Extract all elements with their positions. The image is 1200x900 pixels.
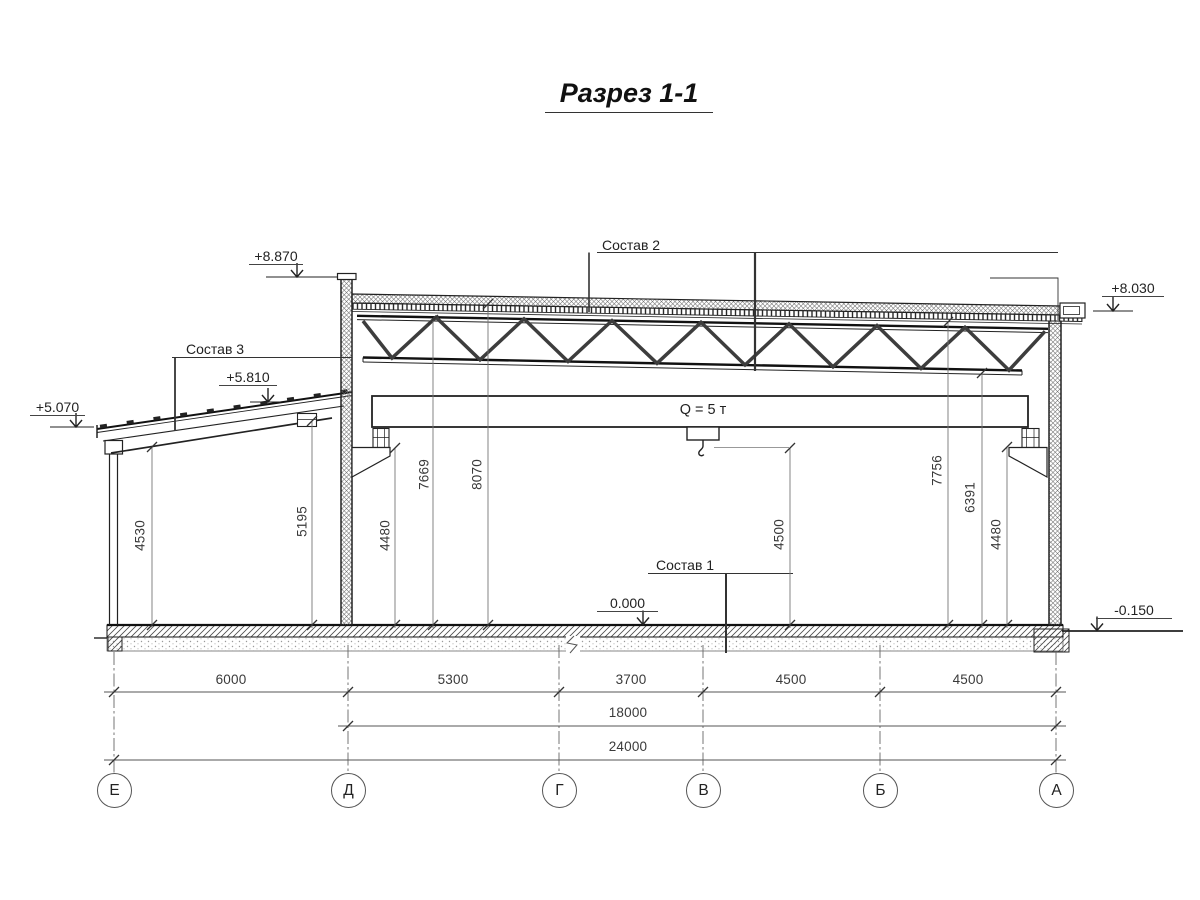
corbel-right — [1009, 448, 1047, 478]
axis-bubble-v: В — [686, 773, 721, 808]
foundation-left — [108, 637, 122, 651]
crane-capacity-label: Q = 5 т — [660, 402, 746, 418]
callout-sostav-3: Состав 3 — [186, 341, 244, 357]
elevation-floor-zero: 0.000 — [597, 595, 658, 612]
dim-roof-left: 8070 — [470, 445, 485, 505]
elevation-arrow-0000 — [637, 611, 649, 625]
dim-truss-right: 7756 — [930, 441, 945, 501]
dim-chord-right: 6391 — [963, 468, 978, 528]
axis-bubble-e: Е — [97, 773, 132, 808]
axis-bubble-a: А — [1039, 773, 1074, 808]
elevation-arrow-8870 — [291, 263, 303, 277]
drawing-sheet: Разрез 1-1 +8.870 +8.030 +5.810 +5.070 0… — [0, 0, 1200, 900]
axis-bubble-g: Г — [542, 773, 577, 808]
dim-total-overall: 24000 — [596, 739, 660, 754]
axis-bubble-b: Б — [863, 773, 898, 808]
dim-annex-right: 5195 — [295, 492, 310, 552]
main-roof — [352, 294, 1085, 324]
wall-axis-A — [1049, 321, 1061, 625]
dim-truss-left: 7669 — [417, 445, 432, 505]
elevation-roof-edge-right: +8.030 — [1102, 280, 1164, 297]
dim-rail-right: 4480 — [989, 505, 1004, 565]
crane-rail-left — [373, 429, 389, 448]
truss-web-diagonals — [363, 317, 1045, 370]
dim-span-d-g: 5300 — [421, 672, 485, 687]
axis-grid-lines — [114, 645, 1056, 774]
callout-sostav-1: Состав 1 — [656, 557, 714, 573]
crane-hook — [699, 440, 704, 456]
elevation-arrow-8030 — [1107, 297, 1119, 311]
elevation-annex-low: +5.070 — [30, 399, 85, 416]
dim-span-e-d: 6000 — [199, 672, 263, 687]
elevation-parapet-left: +8.870 — [249, 248, 303, 265]
horizontal-dim-lines — [104, 692, 1066, 760]
roof-truss — [357, 316, 1048, 375]
crane-rail-right — [1022, 429, 1039, 448]
foundation-right — [1034, 629, 1069, 652]
dim-rail-left: 4480 — [378, 506, 393, 566]
dim-hook-height: 4500 — [772, 505, 787, 565]
corbel-left — [352, 448, 390, 478]
parapet-cap — [338, 274, 357, 280]
floor-slab — [94, 625, 1183, 653]
crane-trolley — [687, 427, 719, 440]
drawing-title: Разрез 1-1 — [545, 78, 713, 113]
dim-span-b-a: 4500 — [936, 672, 1000, 687]
section-drawing — [0, 0, 1200, 900]
dim-span-v-b: 4500 — [759, 672, 823, 687]
dim-annex-left: 4530 — [133, 506, 148, 566]
dim-total-bay: 18000 — [596, 705, 660, 720]
axis-bubble-d: Д — [331, 773, 366, 808]
elevation-ground-right: -0.150 — [1096, 602, 1172, 619]
dim-span-g-v: 3700 — [599, 672, 663, 687]
elevation-arrow-5810 — [262, 388, 274, 402]
elevation-annex-high: +5.810 — [219, 369, 277, 386]
callout-sostav-2: Состав 2 — [602, 237, 660, 253]
